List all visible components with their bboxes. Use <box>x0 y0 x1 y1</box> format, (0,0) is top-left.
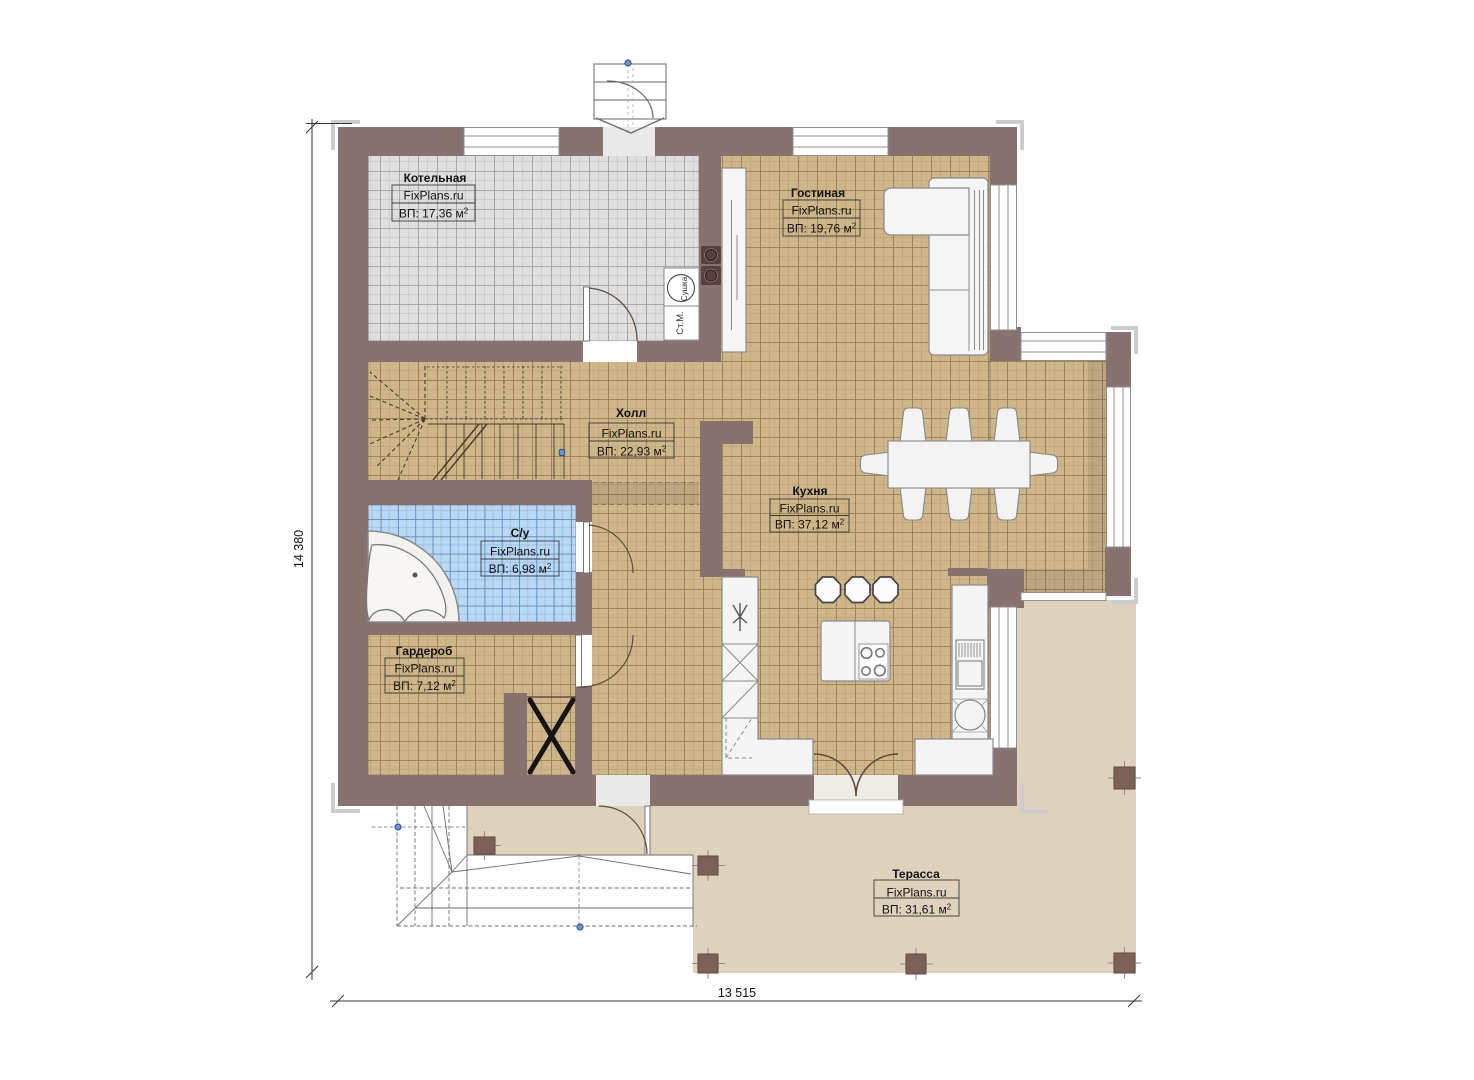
svg-text:ВП: 7,12 м2: ВП: 7,12 м2 <box>393 679 456 693</box>
svg-text:ВП: 37,12 м2: ВП: 37,12 м2 <box>775 518 845 532</box>
svg-text:ВП: 22,93 м2: ВП: 22,93 м2 <box>597 445 667 459</box>
svg-text:С/у: С/у <box>511 526 530 540</box>
svg-text:FixPlans.ru: FixPlans.ru <box>601 427 661 441</box>
svg-text:14 380: 14 380 <box>292 530 306 568</box>
svg-text:Кухня: Кухня <box>792 484 827 498</box>
svg-text:ВП: 6,98 м2: ВП: 6,98 м2 <box>489 562 552 576</box>
svg-text:FixPlans.ru: FixPlans.ru <box>403 189 463 203</box>
svg-text:Гостиная: Гостиная <box>791 186 845 200</box>
svg-text:ВП: 17,36 м2: ВП: 17,36 м2 <box>399 207 469 221</box>
svg-text:Котельная: Котельная <box>404 171 467 185</box>
svg-text:13 515: 13 515 <box>718 986 756 1000</box>
svg-text:FixPlans.ru: FixPlans.ru <box>886 886 946 900</box>
svg-text:FixPlans.ru: FixPlans.ru <box>394 662 454 676</box>
svg-text:Ст.М.: Ст.М. <box>675 311 686 334</box>
svg-text:FixPlans.ru: FixPlans.ru <box>490 545 550 559</box>
svg-text:FixPlans.ru: FixPlans.ru <box>791 204 851 218</box>
svg-text:Гардероб: Гардероб <box>396 644 453 658</box>
svg-text:Сушка: Сушка <box>680 276 689 301</box>
svg-text:Холл: Холл <box>616 406 646 420</box>
svg-text:ВП: 31,61 м2: ВП: 31,61 м2 <box>882 903 952 917</box>
svg-text:Терасса: Терасса <box>892 867 940 881</box>
svg-text:ВП: 19,76 м2: ВП: 19,76 м2 <box>787 222 857 236</box>
svg-text:FixPlans.ru: FixPlans.ru <box>779 502 839 516</box>
